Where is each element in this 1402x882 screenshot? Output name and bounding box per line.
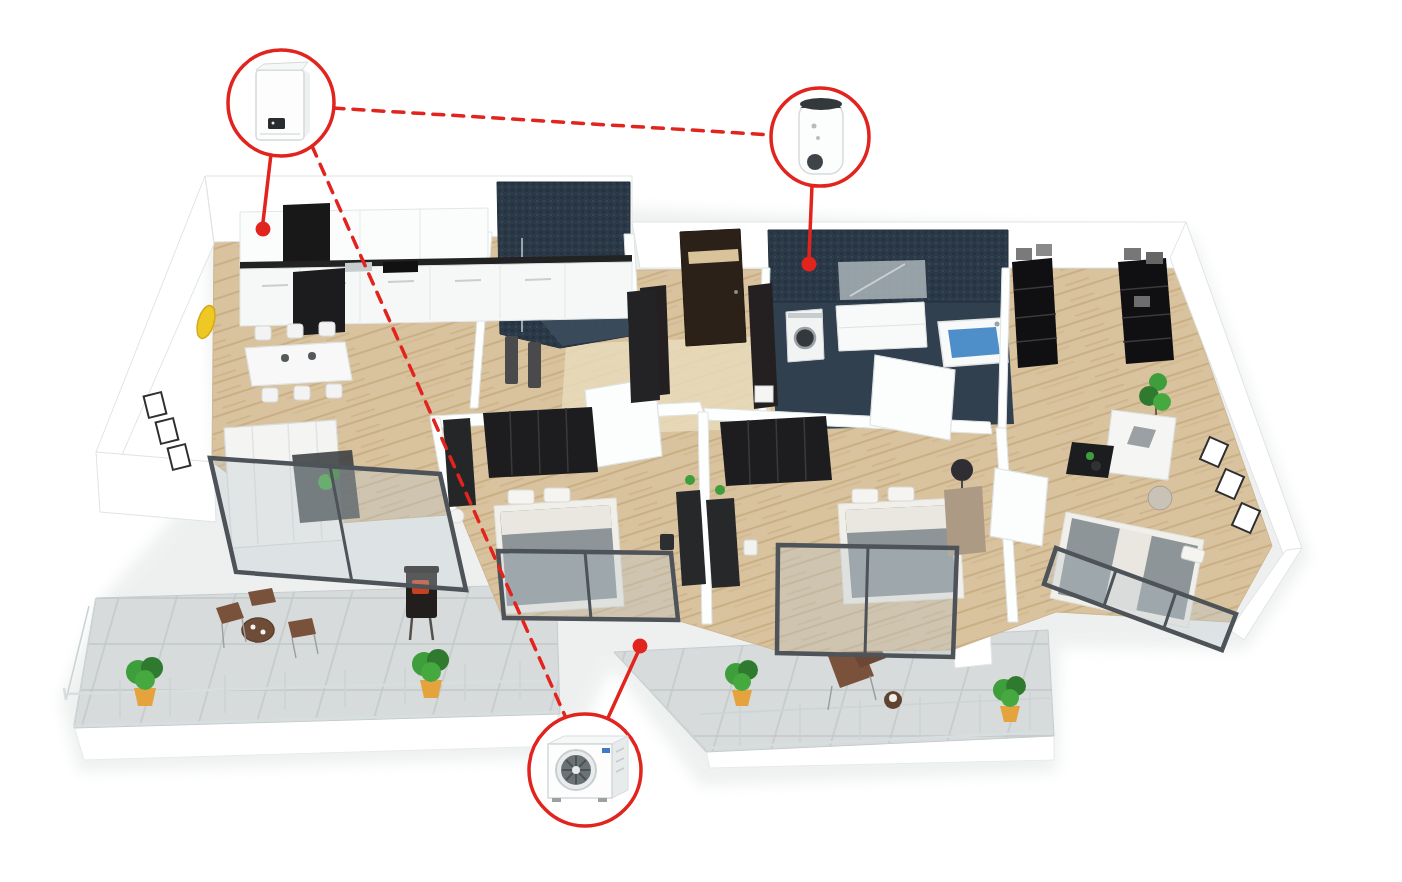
door-handle [734,290,738,294]
kitchen-sink [345,262,372,272]
left-parapet [96,452,216,522]
living-room-sliding-door [210,458,466,590]
right-sofa [1104,410,1176,480]
side-table [1148,486,1172,510]
shelf-unit-left [1012,258,1058,368]
hall-wardrobe [627,289,660,403]
storage-box [1146,252,1163,264]
outdoor-heat-pump-icon [548,736,628,802]
bedroom3-door [990,468,1048,546]
anchor-dot-boiler [256,222,271,237]
range-hood [283,203,330,265]
pillow [508,490,534,504]
bedroom1-sliding-door [498,551,678,620]
pillow [544,488,570,502]
dining-table [245,342,352,386]
anchor-dot-tank [802,257,817,272]
callout-indoor-unit [228,50,334,156]
callout-water-tank [771,88,869,186]
dashed-line-boiler-to-tank [333,108,772,135]
wall-mounted-boiler-icon [256,62,310,140]
storage-basket [755,386,773,402]
washing-machine [786,309,824,362]
terrace-floor [74,584,560,728]
storage-box [1016,248,1032,260]
shelf-unit-right [1118,258,1174,364]
bathroom-mirror [838,260,927,300]
front-door [680,229,746,346]
storage-box [1134,296,1150,307]
pillow [888,487,914,501]
callout-outdoor-unit [529,714,641,826]
page [0,0,1402,882]
table-setting [281,354,289,362]
bathroom-door [870,355,955,440]
storage-box [1124,248,1141,260]
left-outer-wall [96,176,214,464]
right-coffee-table [1066,442,1114,478]
floor-plan-illustration [0,0,1402,882]
kitchen-upper-cabinets [240,208,488,266]
pillow [852,489,878,503]
bathtub [938,318,1008,367]
brand-logo [602,748,610,753]
hot-water-cylinder-icon [799,98,843,174]
anchor-dot-outdoor [633,639,648,654]
cooktop [383,261,418,273]
storage-box [1036,244,1052,256]
table-setting [308,352,316,360]
bedroom2-sliding-door [777,545,957,657]
